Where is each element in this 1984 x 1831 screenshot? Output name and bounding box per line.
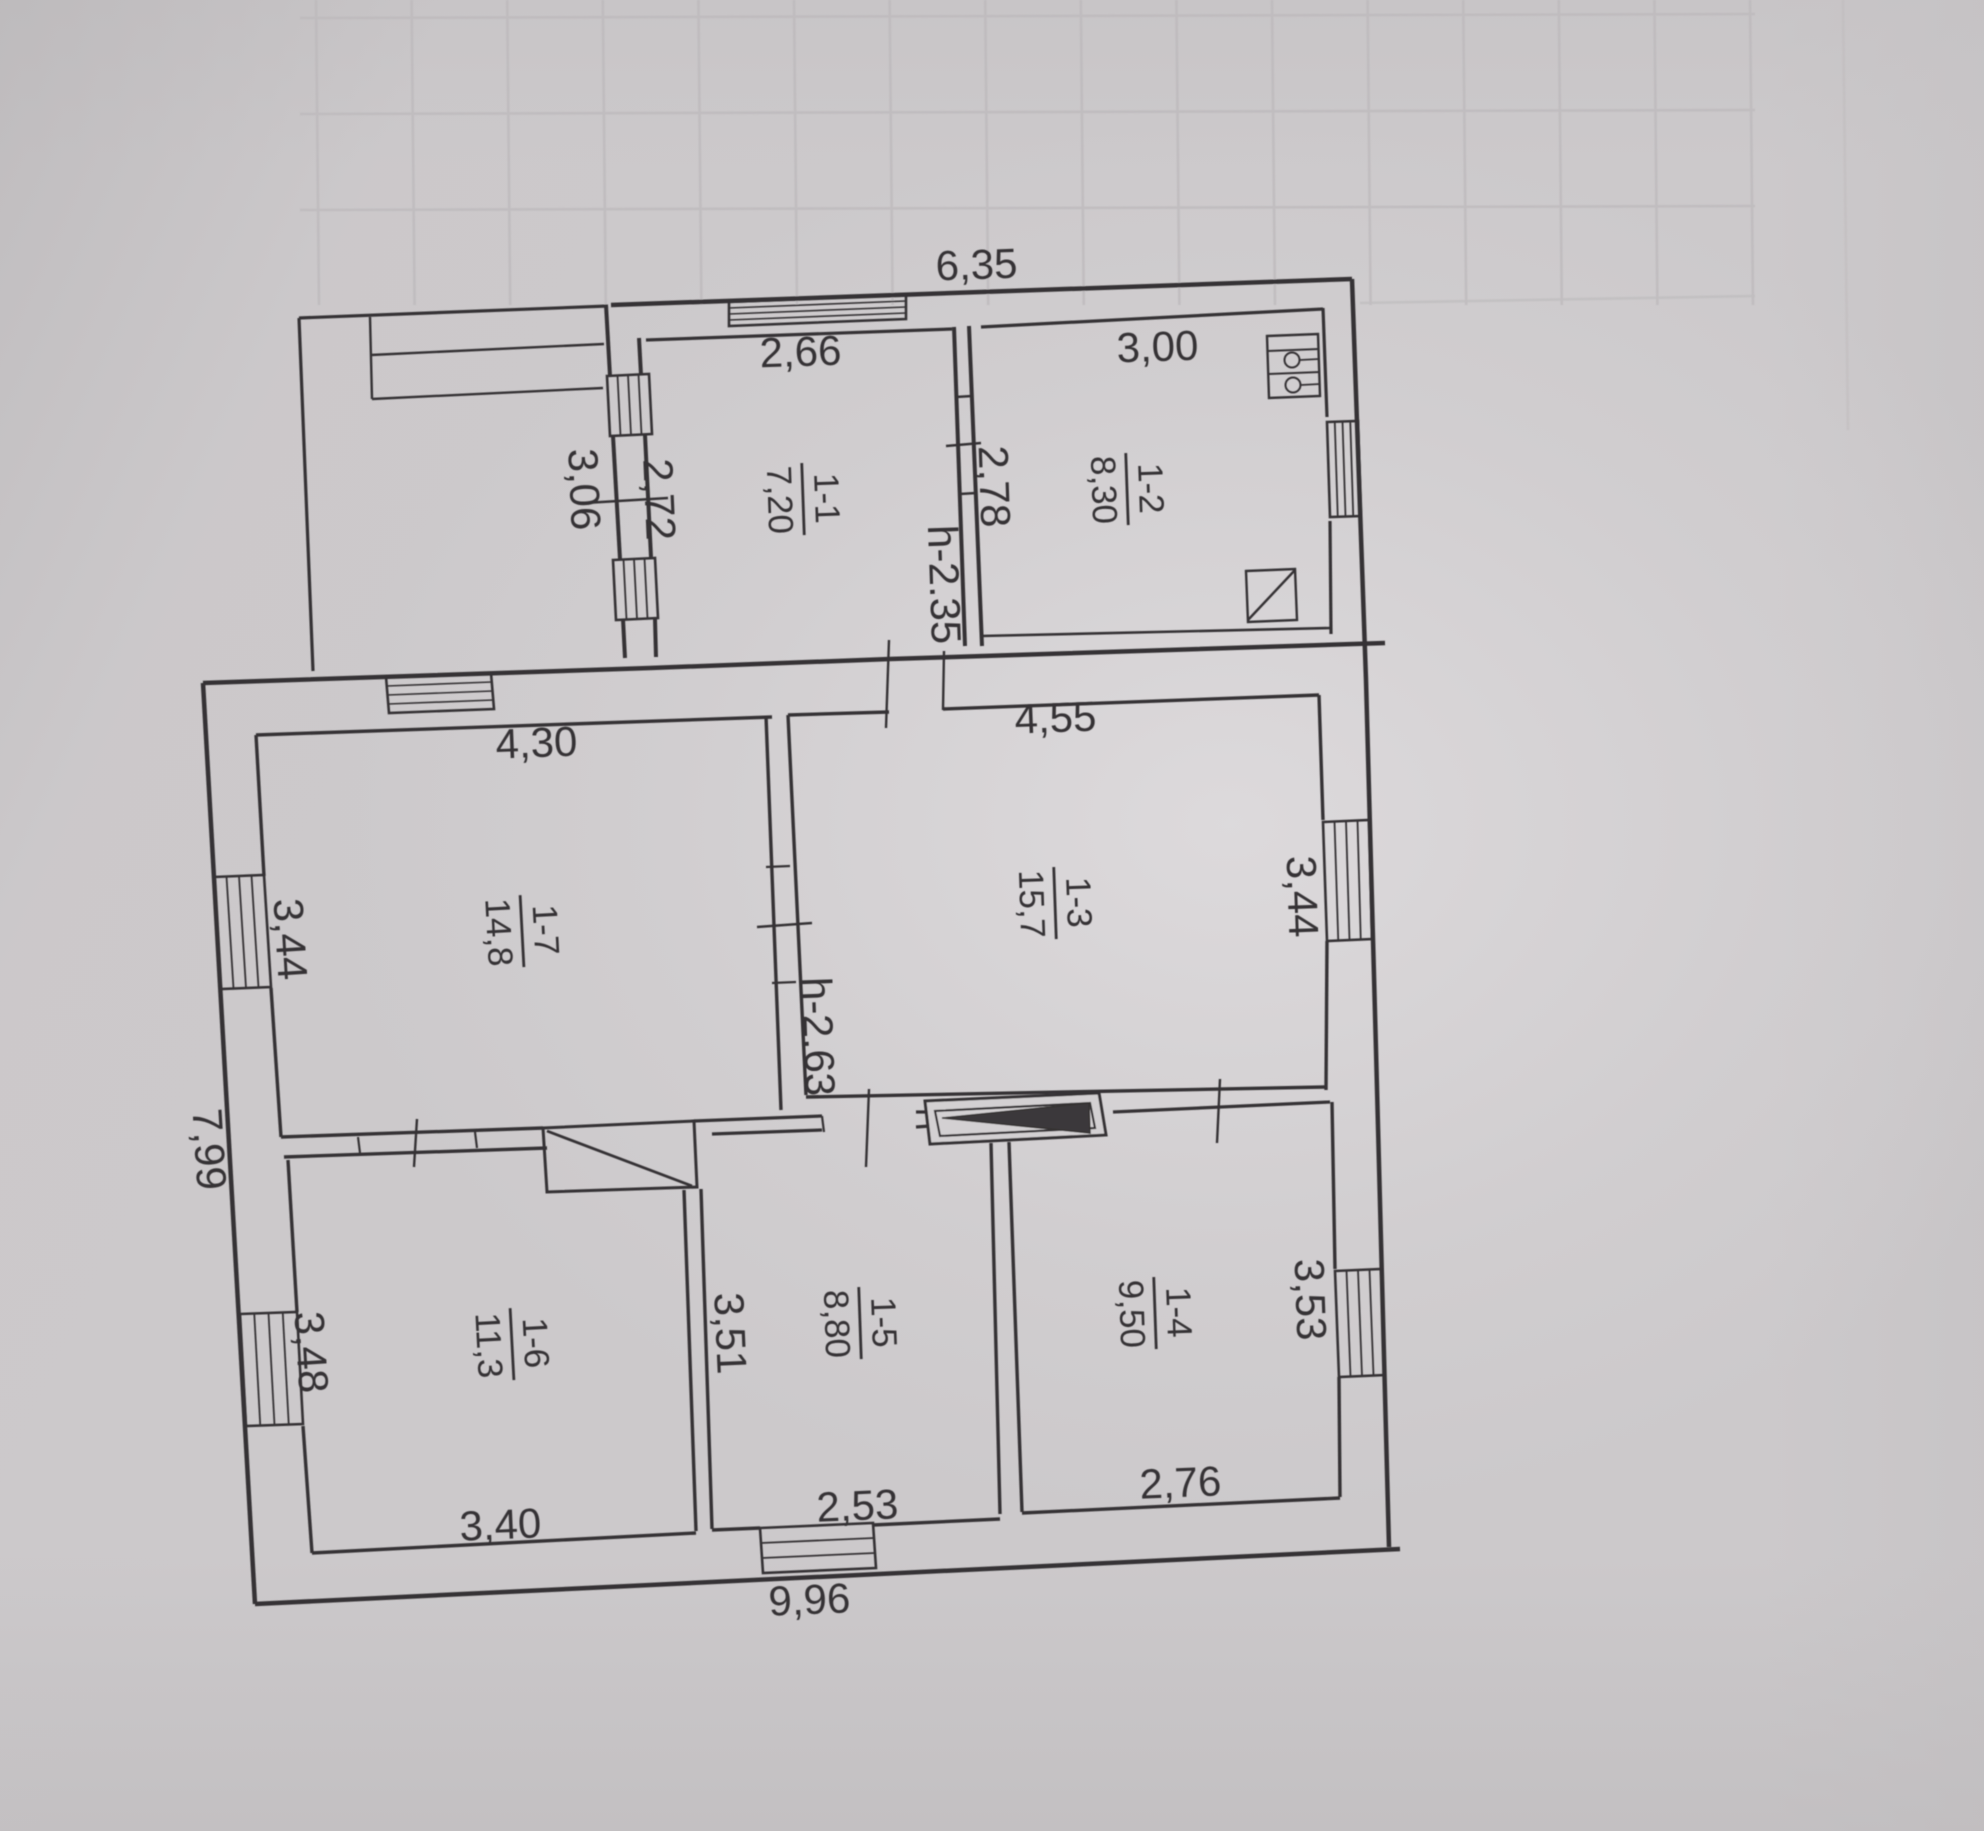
svg-text:1-4: 1-4 [1158, 1286, 1199, 1338]
svg-text:6,35: 6,35 [935, 240, 1018, 290]
svg-text:3,44: 3,44 [265, 897, 317, 981]
svg-text:7,20: 7,20 [759, 465, 800, 534]
svg-text:3,44: 3,44 [1278, 855, 1328, 938]
svg-text:3,48: 3,48 [286, 1310, 338, 1394]
svg-text:3,40: 3,40 [459, 1499, 543, 1550]
svg-text:14,8: 14,8 [477, 897, 520, 967]
svg-text:4,30: 4,30 [495, 717, 578, 767]
svg-text:7,99: 7,99 [184, 1107, 236, 1191]
svg-text:2,66: 2,66 [759, 327, 842, 377]
svg-text:1-7: 1-7 [525, 904, 567, 957]
svg-text:1-5: 1-5 [863, 1296, 904, 1348]
svg-text:3,06: 3,06 [559, 448, 610, 532]
svg-text:1-1: 1-1 [806, 472, 847, 524]
svg-text:11,3: 11,3 [467, 1312, 509, 1379]
svg-text:4,55: 4,55 [1014, 692, 1097, 742]
svg-text:8,80: 8,80 [816, 1289, 857, 1358]
svg-text:h-2.63: h-2.63 [793, 976, 844, 1097]
svg-text:9,50: 9,50 [1111, 1279, 1152, 1348]
svg-text:h-2.35: h-2.35 [919, 524, 970, 645]
svg-text:2,76: 2,76 [1139, 1457, 1223, 1508]
svg-text:2,78: 2,78 [970, 445, 1020, 528]
svg-text:8,30: 8,30 [1083, 455, 1124, 524]
svg-text:2,53: 2,53 [816, 1480, 900, 1531]
svg-text:1-2: 1-2 [1130, 462, 1171, 514]
svg-text:1-3: 1-3 [1058, 876, 1099, 928]
svg-text:3,53: 3,53 [1286, 1258, 1336, 1341]
svg-text:3,00: 3,00 [1116, 322, 1199, 372]
svg-text:15,7: 15,7 [1011, 869, 1052, 938]
svg-text:1-6: 1-6 [515, 1317, 557, 1370]
svg-text:9,96: 9,96 [768, 1574, 852, 1625]
svg-text:3,51: 3,51 [705, 1292, 756, 1376]
svg-text:2,72: 2,72 [634, 458, 685, 542]
